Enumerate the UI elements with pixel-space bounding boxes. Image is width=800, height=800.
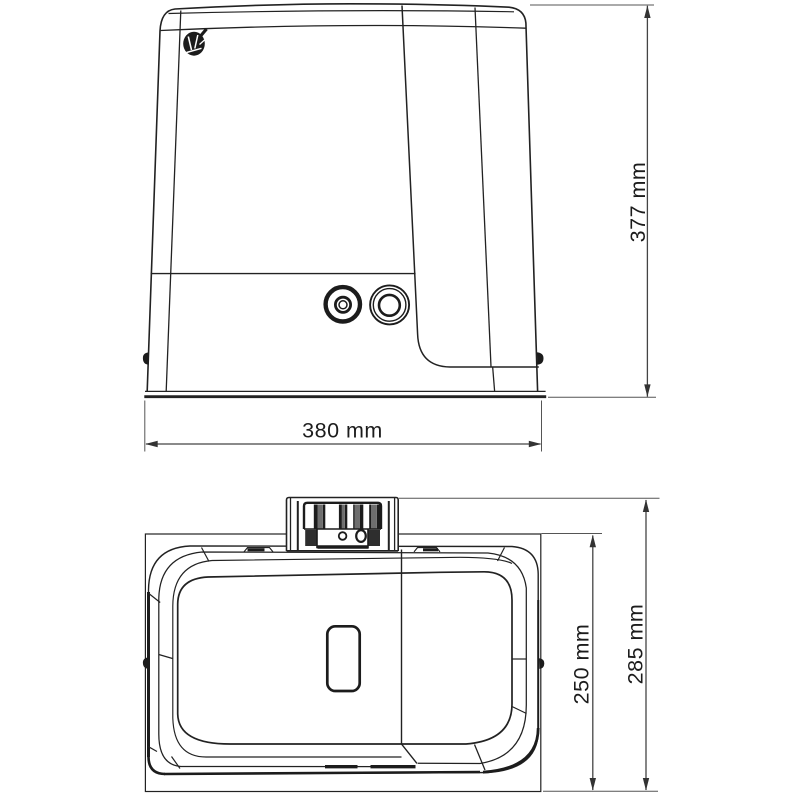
- svg-text:377 mm: 377 mm: [626, 162, 650, 243]
- svg-text:380 mm: 380 mm: [302, 419, 383, 443]
- svg-text:285 mm: 285 mm: [624, 604, 648, 685]
- svg-text:250 mm: 250 mm: [570, 624, 594, 705]
